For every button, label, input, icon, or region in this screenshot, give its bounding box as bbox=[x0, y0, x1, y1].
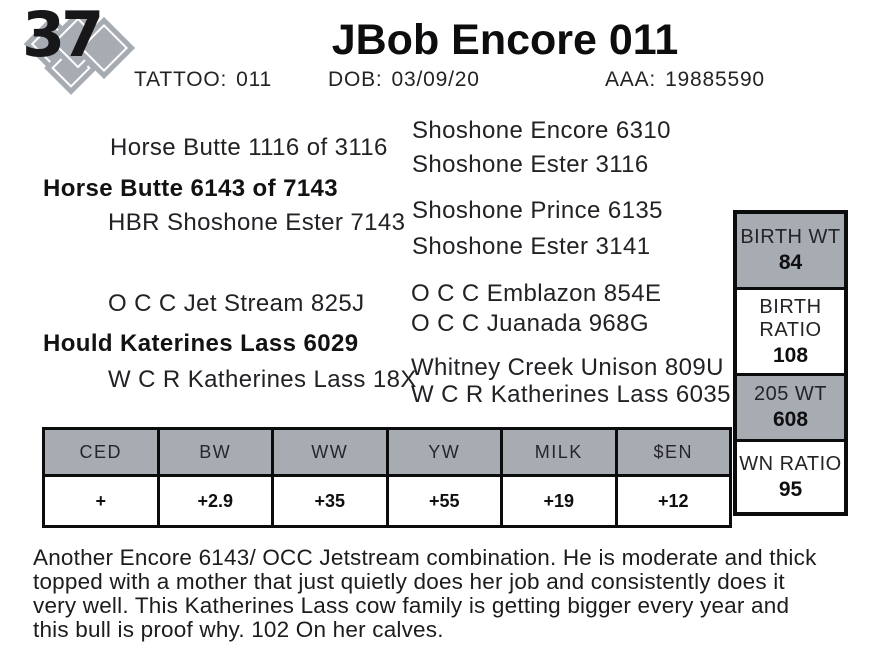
dob-value: 03/09/20 bbox=[392, 68, 480, 91]
stat-205-wt: 205 WT 608 bbox=[737, 373, 844, 439]
description-line: Another Encore 6143/ OCC Jetstream combi… bbox=[33, 546, 883, 570]
sire-ggparent: Shoshone Ester 3116 bbox=[412, 153, 649, 177]
epd-header-milk: MILK bbox=[500, 430, 615, 474]
sire-grandsire: Horse Butte 1116 of 3116 bbox=[110, 136, 388, 160]
tattoo-value: 011 bbox=[236, 68, 272, 91]
stat-value: 608 bbox=[773, 408, 808, 432]
aaa-label: AAA: bbox=[605, 68, 656, 91]
dam-granddam: W C R Katherines Lass 18X bbox=[108, 368, 417, 392]
catalog-page: 37 JBob Encore 011 TATTOO:011 DOB:03/09/… bbox=[0, 0, 891, 669]
epd-header-yw: YW bbox=[386, 430, 501, 474]
tattoo-label: TATTOO: bbox=[134, 68, 227, 91]
weight-stats-box: BIRTH WT 84 BIRTH RATIO 108 205 WT 608 W… bbox=[733, 210, 848, 516]
stat-birth-wt: BIRTH WT 84 bbox=[737, 214, 844, 287]
sire-granddam: HBR Shoshone Ester 7143 bbox=[108, 211, 405, 235]
stat-value: 95 bbox=[779, 478, 802, 502]
epd-value-yw: +55 bbox=[386, 477, 501, 525]
tattoo-field: TATTOO:011 bbox=[134, 68, 272, 92]
epd-header-ced: CED bbox=[45, 430, 157, 474]
dam-ggparent: Whitney Creek Unison 809U bbox=[411, 356, 724, 380]
epd-header-row: CED BW WW YW MILK $EN bbox=[45, 430, 729, 477]
page-title: JBob Encore 011 bbox=[160, 16, 850, 65]
epd-value-ced: + bbox=[45, 477, 157, 525]
lot-number: 37 bbox=[22, 4, 100, 66]
epd-value-row: + +2.9 +35 +55 +19 +12 bbox=[45, 477, 729, 525]
stat-wn-ratio: WN RATIO 95 bbox=[737, 439, 844, 512]
stat-birth-ratio: BIRTH RATIO 108 bbox=[737, 287, 844, 373]
sire-ggparent: Shoshone Prince 6135 bbox=[412, 199, 663, 223]
epd-value-bw: +2.9 bbox=[157, 477, 272, 525]
epd-value-ww: +35 bbox=[271, 477, 386, 525]
dob-field: DOB:03/09/20 bbox=[328, 68, 480, 92]
dam-ggparent: O C C Juanada 968G bbox=[411, 312, 649, 336]
aaa-field: AAA:19885590 bbox=[605, 68, 765, 92]
description-paragraph: Another Encore 6143/ OCC Jetstream combi… bbox=[33, 546, 883, 642]
dam-grandsire: O C C Jet Stream 825J bbox=[108, 292, 365, 316]
sire-name: Horse Butte 6143 of 7143 bbox=[43, 177, 338, 201]
sire-ggparent: Shoshone Ester 3141 bbox=[412, 235, 650, 259]
stat-label: 205 WT bbox=[754, 383, 827, 406]
aaa-value: 19885590 bbox=[665, 68, 765, 91]
dob-label: DOB: bbox=[328, 68, 383, 91]
stat-value: 84 bbox=[779, 251, 802, 275]
sire-ggparent: Shoshone Encore 6310 bbox=[412, 119, 671, 143]
stat-label: BIRTH WT bbox=[740, 226, 840, 249]
epd-value-en: +12 bbox=[615, 477, 730, 525]
stat-label: WN RATIO bbox=[739, 453, 842, 476]
epd-header-en: $EN bbox=[615, 430, 730, 474]
stat-value: 108 bbox=[773, 344, 808, 368]
epd-header-ww: WW bbox=[271, 430, 386, 474]
epd-table: CED BW WW YW MILK $EN + +2.9 +35 +55 +19… bbox=[42, 427, 732, 528]
epd-value-milk: +19 bbox=[500, 477, 615, 525]
description-line: very well. This Katherines Lass cow fami… bbox=[33, 594, 883, 618]
stat-label: BIRTH RATIO bbox=[737, 296, 844, 342]
dam-ggparent: O C C Emblazon 854E bbox=[411, 282, 661, 306]
dam-name: Hould Katerines Lass 6029 bbox=[43, 332, 358, 356]
dam-ggparent: W C R Katherines Lass 6035 bbox=[411, 383, 731, 407]
description-line: topped with a mother that just quietly d… bbox=[33, 570, 883, 594]
epd-header-bw: BW bbox=[157, 430, 272, 474]
description-line: this bull is proof why. 102 On her calve… bbox=[33, 618, 883, 642]
